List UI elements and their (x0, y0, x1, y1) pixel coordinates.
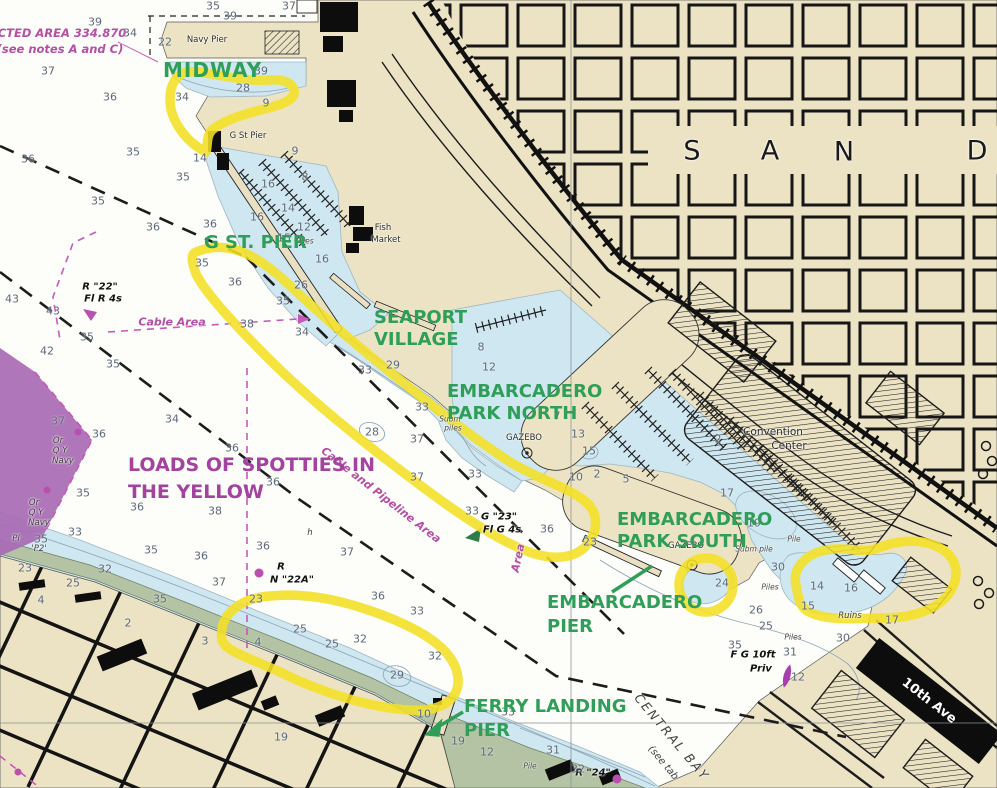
buoy-n22a-icon (255, 569, 264, 578)
nautical-chart: Navy PierG St PierFishMarketConventionCe… (0, 0, 997, 788)
chart-base-map (0, 0, 997, 788)
buoy-r24-icon (613, 775, 622, 784)
